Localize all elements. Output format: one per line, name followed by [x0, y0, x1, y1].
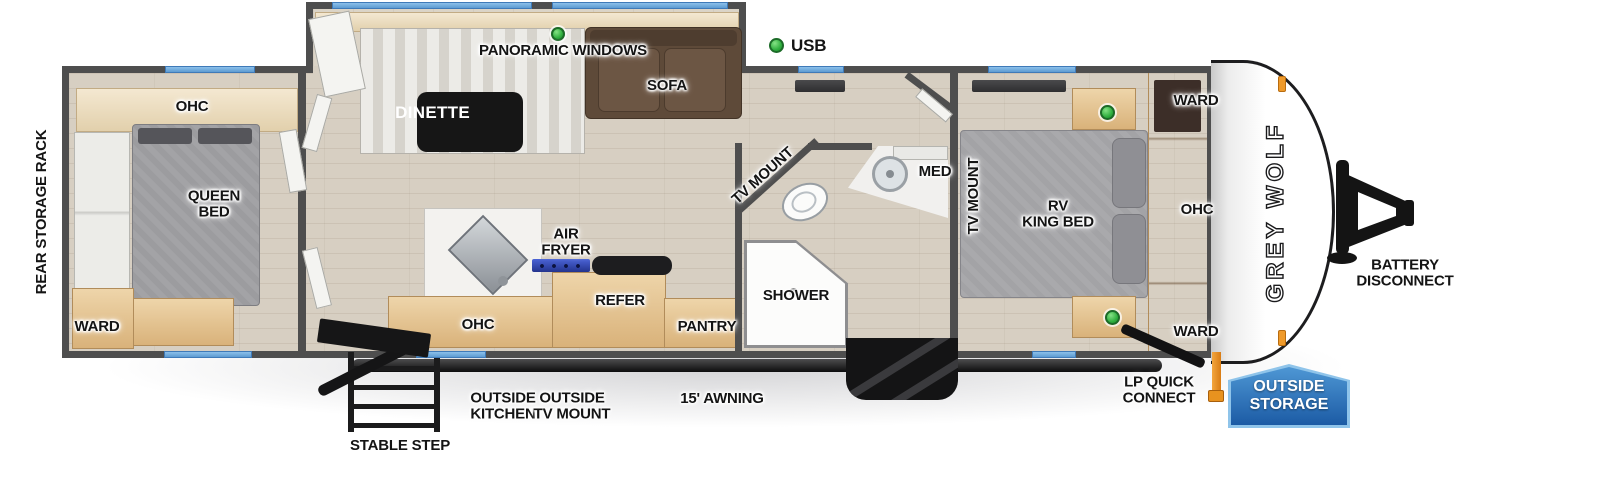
faucet-icon [498, 276, 508, 286]
usb-indicator-icon [1105, 310, 1120, 325]
hitch-a-frame [1322, 158, 1414, 270]
label-ward: WARD [1173, 324, 1218, 340]
label-ward: WARD [74, 319, 119, 335]
label-outside-tv-mount: OUTSIDE TV MOUNT [525, 390, 620, 422]
rear-wardrobe [74, 132, 130, 296]
step-tread [354, 404, 434, 409]
pillow [1112, 138, 1146, 208]
label-tv-mount: TV MOUNT [966, 158, 982, 235]
label-awning: 15' AWNING [680, 391, 764, 407]
window [988, 66, 1076, 73]
usb-indicator-icon [551, 27, 565, 41]
label-ohc: OHC [176, 99, 209, 115]
refrigerator [552, 272, 666, 348]
pillow [138, 128, 192, 144]
bedroom-overhead-cabinet [972, 80, 1066, 92]
window [798, 66, 844, 73]
label-air-fryer: AIR FRYER [526, 226, 606, 258]
bedroom-divider-wall [298, 73, 306, 351]
outside-storage-badge-inner: OUTSIDE STORAGE [1231, 367, 1347, 425]
marker-light-icon [1278, 330, 1286, 346]
label-shower: SHOWER [763, 288, 829, 304]
pillow [1112, 214, 1146, 284]
label-lp-quick-connect: LP QUICK CONNECT [1099, 374, 1219, 406]
label-stable-step: STABLE STEP [350, 438, 450, 454]
step-tread [354, 385, 434, 390]
entry-steps [846, 338, 958, 400]
cooktop [532, 259, 590, 272]
label-rear-storage-rack: REAR STORAGE RACK [34, 130, 50, 295]
label-rv-king-bed: RV KING BED [1008, 198, 1108, 230]
floorplan-canvas: GREY WOLF REAR STORAGE RACK OHC QUEEN BE… [0, 0, 1600, 480]
window [332, 2, 532, 9]
label-pantry: PANTRY [678, 319, 737, 335]
label-ohc: OHC [1181, 202, 1214, 218]
label-outside-storage: OUTSIDE STORAGE [1250, 378, 1329, 413]
hallway-overhead-cabinet [795, 80, 845, 92]
dinette-table: DINETTE [417, 92, 523, 152]
window [552, 2, 728, 9]
window [165, 66, 255, 73]
marker-light-icon [1278, 76, 1286, 92]
awning-bar [352, 359, 1162, 372]
label-queen-bed: QUEEN BED [174, 188, 254, 220]
grey-wolf-logo: GREY WOLF [1262, 102, 1292, 322]
label-panoramic-windows: PANORAMIC WINDOWS [428, 43, 698, 59]
label-sofa: SOFA [647, 78, 687, 94]
step-tread [354, 423, 434, 428]
label-usb-legend: USB [791, 37, 826, 55]
window [164, 351, 252, 358]
medicine-cabinet [893, 146, 948, 160]
label-ward: WARD [1173, 93, 1218, 109]
usb-indicator-icon [1100, 105, 1115, 120]
label-dinette: DINETTE [395, 104, 470, 122]
usb-indicator-icon [769, 38, 784, 53]
label-med-cabinet: MED [919, 164, 952, 180]
range-griddle [592, 256, 672, 275]
sink-drain-icon [886, 170, 894, 178]
label-battery-disconnect: BATTERY DISCONNECT [1330, 257, 1480, 289]
window [1032, 351, 1076, 358]
label-refer: REFER [595, 293, 645, 309]
pillow [198, 128, 252, 144]
label-ohc: OHC [462, 317, 495, 333]
